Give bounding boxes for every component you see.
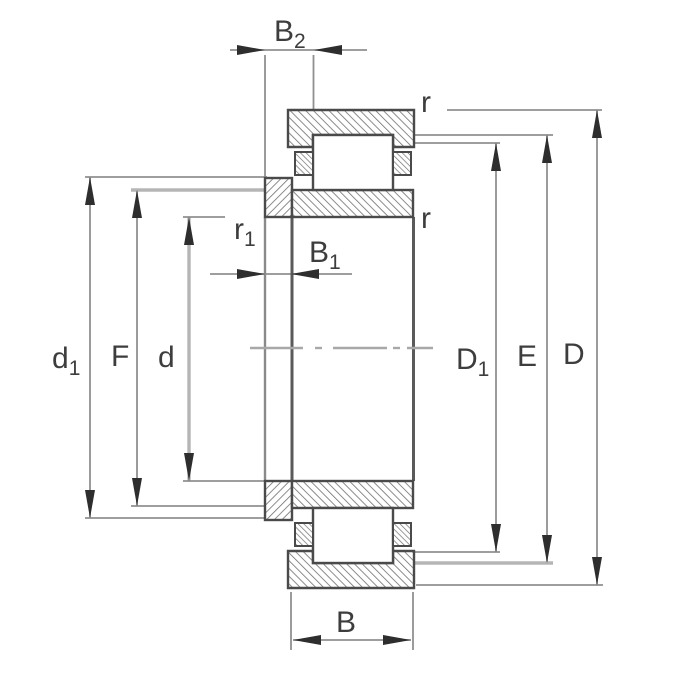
label-d1: d1 bbox=[52, 342, 80, 380]
cage-top-right bbox=[393, 152, 411, 175]
label-r-bottom: r bbox=[421, 202, 431, 235]
inner-ring-bottom bbox=[292, 481, 413, 508]
label-D: D bbox=[563, 338, 585, 371]
label-B2: B2 bbox=[274, 15, 306, 53]
inner-ring-top bbox=[292, 190, 413, 217]
label-F: F bbox=[111, 340, 129, 373]
label-D1: D1 bbox=[456, 343, 489, 381]
arrow-B1-right bbox=[291, 269, 319, 279]
arrow-d1-bottom bbox=[85, 490, 95, 518]
arrow-D-bottom bbox=[592, 557, 602, 585]
arrow-F-bottom bbox=[132, 478, 142, 506]
cage-top-left bbox=[295, 152, 313, 175]
label-E: E bbox=[517, 340, 537, 373]
arrow-E-bottom bbox=[542, 535, 552, 563]
cage-bottom-right bbox=[393, 523, 411, 546]
label-r-top: r bbox=[421, 86, 431, 119]
cage-bottom-left bbox=[295, 523, 313, 546]
arrow-E-top bbox=[542, 135, 552, 163]
angle-ring-bottom bbox=[265, 481, 292, 520]
arrow-D-top bbox=[592, 110, 602, 138]
arrow-B2-left bbox=[237, 45, 265, 55]
arrow-d1-top bbox=[85, 177, 95, 205]
roller-top bbox=[313, 135, 393, 190]
arrow-B-right bbox=[383, 635, 411, 645]
arrow-B2-right bbox=[314, 45, 342, 55]
bearing-bottom-section bbox=[265, 481, 414, 588]
roller-bottom bbox=[313, 508, 393, 563]
label-B1: B1 bbox=[309, 236, 341, 274]
arrow-d-bottom bbox=[184, 453, 194, 481]
bearing-dimension-drawing: B2 r1 B1 r r d1 F d D1 E D B bbox=[0, 0, 680, 680]
arrow-d-top bbox=[184, 217, 194, 245]
bearing-top-section bbox=[265, 110, 414, 217]
arrow-F-top bbox=[132, 190, 142, 218]
arrow-D1-top bbox=[491, 143, 501, 171]
angle-ring-top bbox=[265, 178, 292, 217]
arrow-D1-bottom bbox=[491, 524, 501, 552]
label-r1: r1 bbox=[234, 213, 256, 251]
label-d: d bbox=[158, 341, 175, 374]
arrow-B1-left bbox=[237, 269, 265, 279]
label-B: B bbox=[336, 606, 356, 639]
arrow-B-left bbox=[293, 635, 321, 645]
